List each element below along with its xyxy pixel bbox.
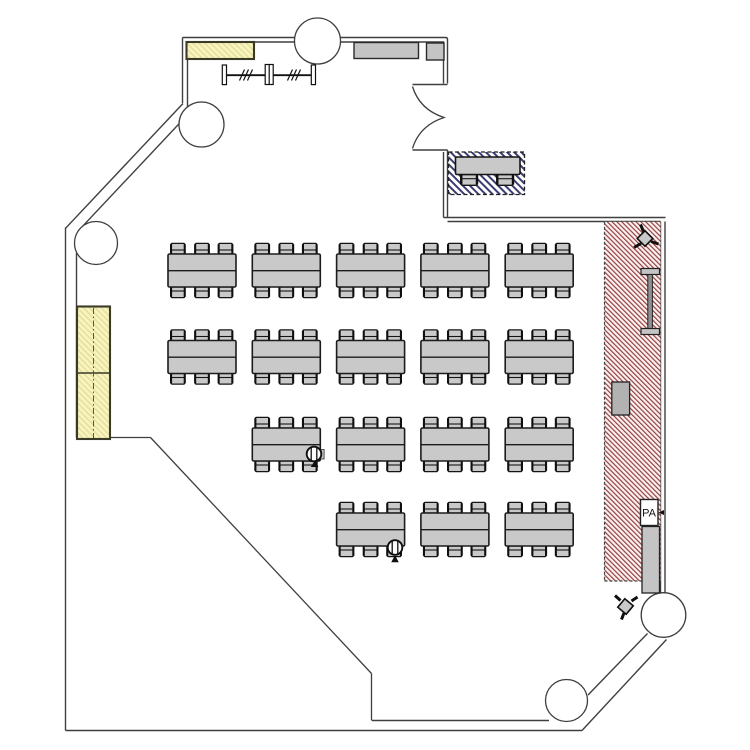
- svg-text:PA: PA: [642, 508, 657, 520]
